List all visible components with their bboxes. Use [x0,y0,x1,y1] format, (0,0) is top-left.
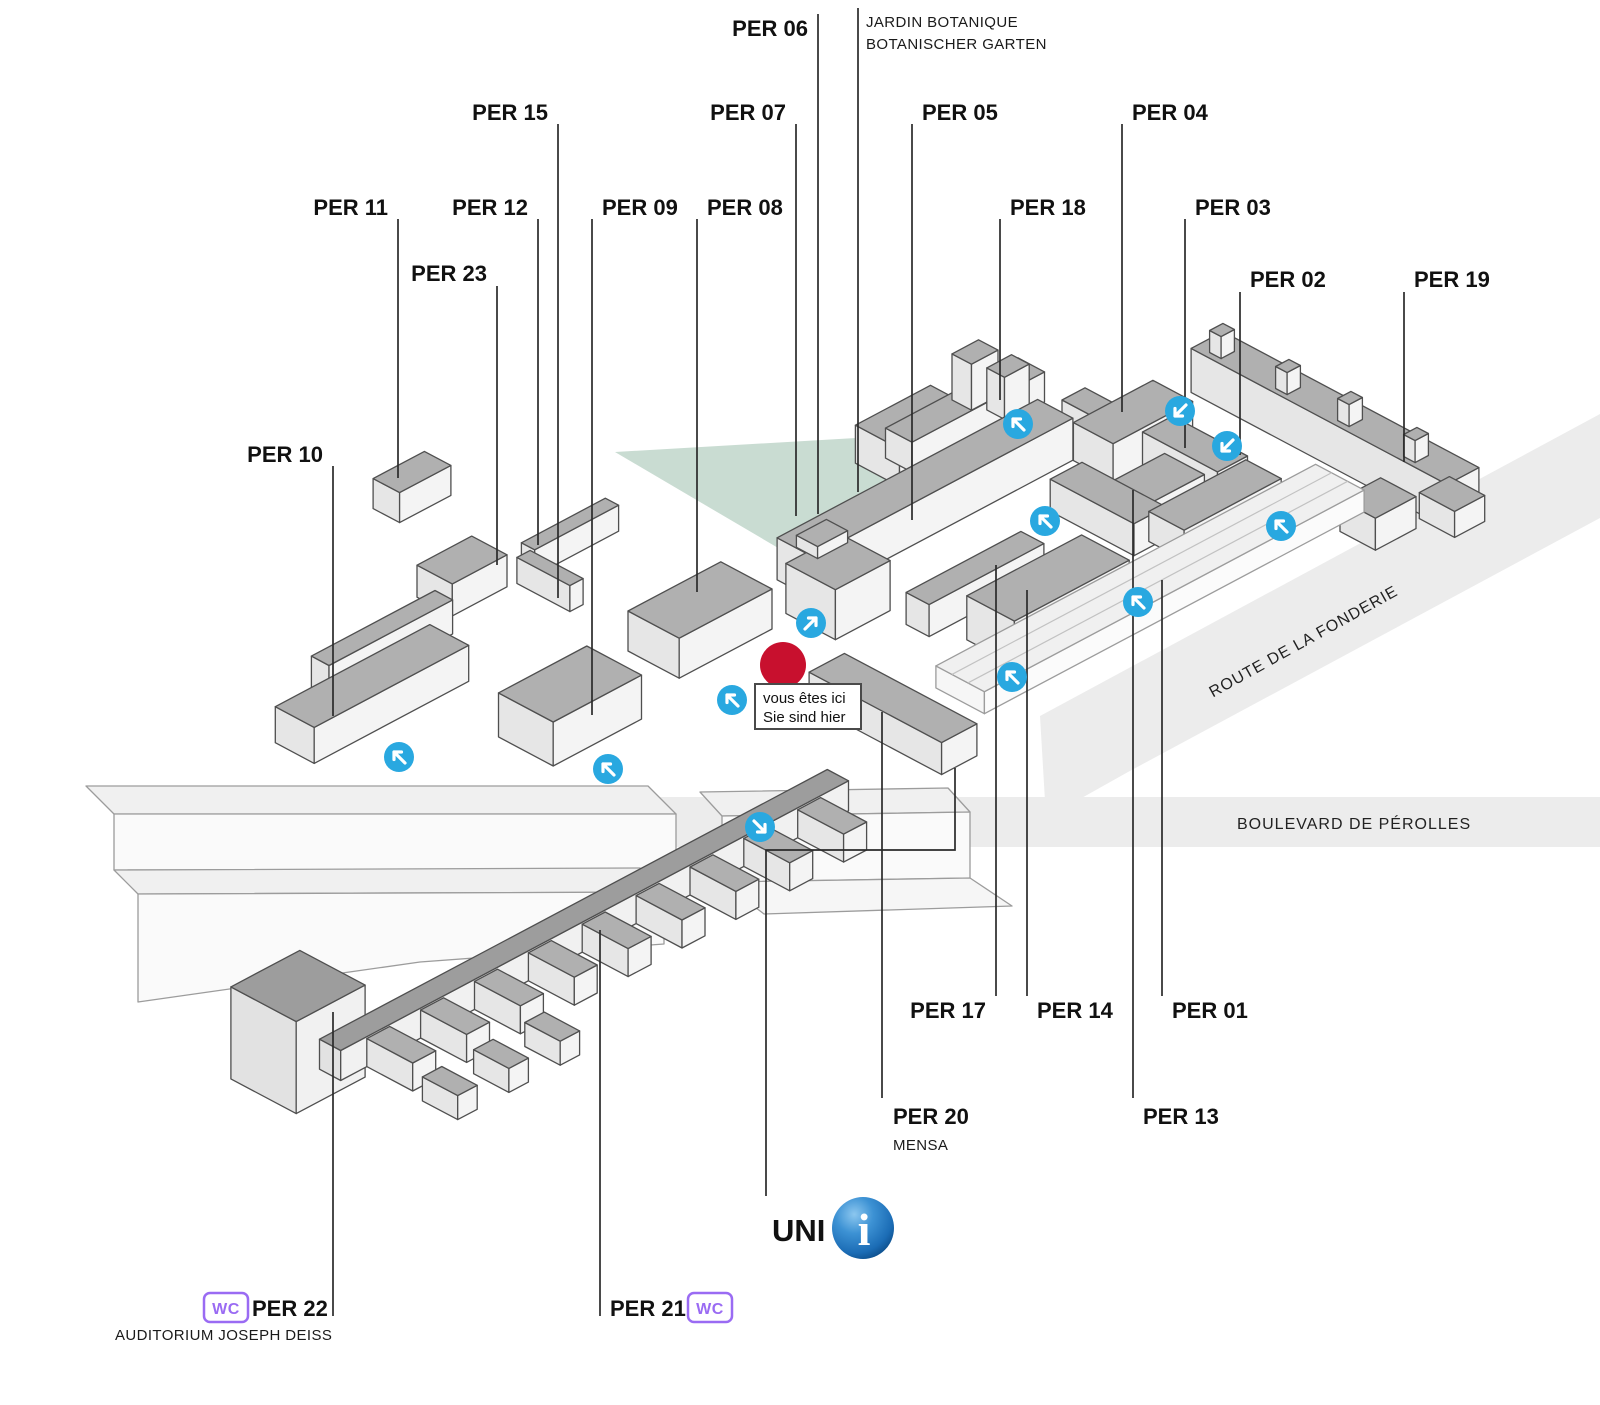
wc-badge-per22: WC [204,1293,248,1322]
label-per17: PER 17 [910,998,986,1023]
you-are-here-text-de: Sie sind hier [763,709,846,726]
you-are-here-dot [760,642,806,688]
building-per02-tower-1 [1210,323,1235,358]
info-i-letter: i [858,1204,871,1255]
entrance-arrow-icon-3 [717,685,747,715]
label-per07: PER 07 [710,100,786,125]
label-boulevard-de-perolles: BOULEVARD DE PÉROLLES [1237,814,1471,833]
label-per14: PER 14 [1037,998,1114,1023]
label-per15: PER 15 [472,100,548,125]
entrance-arrow-icon-5 [1003,409,1033,439]
you-are-here-text-fr: vous êtes ici [763,690,846,707]
entrance-arrow-icon-10 [1123,587,1153,617]
entrance-arrow-icon-2 [593,754,623,784]
label-per04: PER 04 [1132,100,1209,125]
wc-badge-per21: WC [688,1293,732,1322]
label-per02: PER 02 [1250,267,1326,292]
label-per11: PER 11 [313,195,388,220]
w1-step-roof [114,868,664,894]
entrance-arrow-icon-9 [997,662,1027,692]
entrance-arrow-icon-11 [1266,511,1296,541]
label-per18: PER 18 [1010,195,1086,220]
label-per13: PER 13 [1143,1104,1219,1129]
w1-face [114,814,676,870]
building-per02-tower-4 [1404,427,1429,462]
label-per08: PER 08 [707,195,783,220]
entrance-arrow-icon-8 [1030,506,1060,536]
entrance-arrow-icon-1 [384,742,414,772]
wc-badge-text: WC [696,1301,724,1318]
label-auditorium-joseph-deiss: AUDITORIUM JOSEPH DEISS [115,1327,332,1344]
campus-map-svg: PER 06 JARDIN BOTANIQUE BOTANISCHER GART… [0,0,1600,1405]
label-mensa: MENSA [893,1137,948,1154]
wc-badge-text: WC [212,1301,240,1318]
label-per06: PER 06 [732,16,808,41]
building-per02-tower-3 [1338,391,1363,426]
building-per02-tower-2 [1276,359,1301,394]
label-per10: PER 10 [247,442,323,467]
label-per22: PER 22 [252,1296,328,1321]
you-are-here-callout: vous êtes ici Sie sind hier [755,684,861,729]
uni-text: UNI [772,1213,825,1248]
label-per03: PER 03 [1195,195,1271,220]
entrance-arrow-icon-4 [796,608,826,638]
entrance-arrow-icon-6 [1165,396,1195,426]
label-botanischer-garten: BOTANISCHER GARTEN [866,36,1047,53]
label-per09: PER 09 [602,195,678,220]
entrance-arrow-icon-12 [745,812,775,842]
campus-map-page: PER 06 JARDIN BOTANIQUE BOTANISCHER GART… [0,0,1600,1405]
label-per21: PER 21 [610,1296,686,1321]
label-per01: PER 01 [1172,998,1248,1023]
label-per12: PER 12 [452,195,528,220]
label-per23: PER 23 [411,261,487,286]
label-per19: PER 19 [1414,267,1490,292]
w1-roof [86,786,676,814]
label-per05: PER 05 [922,100,998,125]
entrance-arrow-icon-7 [1212,431,1242,461]
label-per20: PER 20 [893,1104,969,1129]
label-jardin-botanique: JARDIN BOTANIQUE [866,14,1018,31]
